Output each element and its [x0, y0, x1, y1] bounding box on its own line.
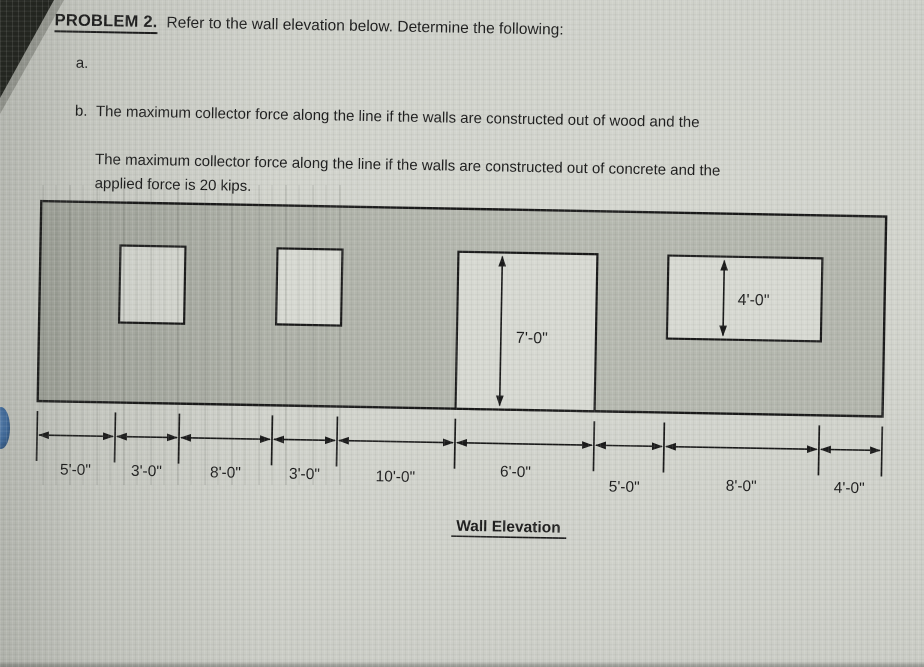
diagram-caption: Wall Elevation: [456, 518, 561, 537]
window-opening-1: [119, 246, 185, 324]
window-height-label: 4'-0": [737, 292, 769, 310]
dim-segment-4: [274, 439, 335, 440]
window-opening-2: [276, 248, 342, 325]
dim-label-9: 4'-0": [834, 480, 865, 498]
wall-elevation-diagram: 7'-0" 4'-0": [0, 0, 924, 667]
dim-label-3: 8'-0": [210, 464, 241, 482]
worksheet: PROBLEM 2.Refer to the wall elevation be…: [0, 0, 924, 667]
dim-label-8: 8'-0": [726, 478, 757, 496]
dim-segment-6: [457, 443, 592, 445]
dim-label-2: 3'-0": [131, 463, 162, 481]
dim-segment-7: [596, 445, 662, 446]
dimension-labels: 5'-0" 3'-0" 8'-0" 3'-0" 10'-0" 6'-0" 5'-…: [60, 455, 865, 500]
dim-segment-2: [117, 436, 177, 437]
dim-label-1: 5'-0": [60, 461, 91, 479]
dim-segment-5: [339, 441, 453, 443]
dimension-line: [39, 435, 880, 450]
dim-label-4: 3'-0": [289, 466, 320, 484]
dim-segment-1: [39, 435, 113, 436]
photo-background: PROBLEM 2.Refer to the wall elevation be…: [0, 0, 924, 667]
caption-underline: [451, 536, 566, 538]
dim-label-5: 10'-0": [375, 468, 415, 486]
dim-segment-9: [821, 449, 880, 450]
dim-segment-3: [181, 438, 270, 440]
dim-segment-8: [666, 447, 817, 450]
dim-label-6: 6'-0": [500, 464, 531, 482]
extension-lines: [37, 411, 883, 476]
dim-label-7: 5'-0": [609, 479, 640, 497]
door-height-label: 7'-0": [516, 330, 548, 348]
